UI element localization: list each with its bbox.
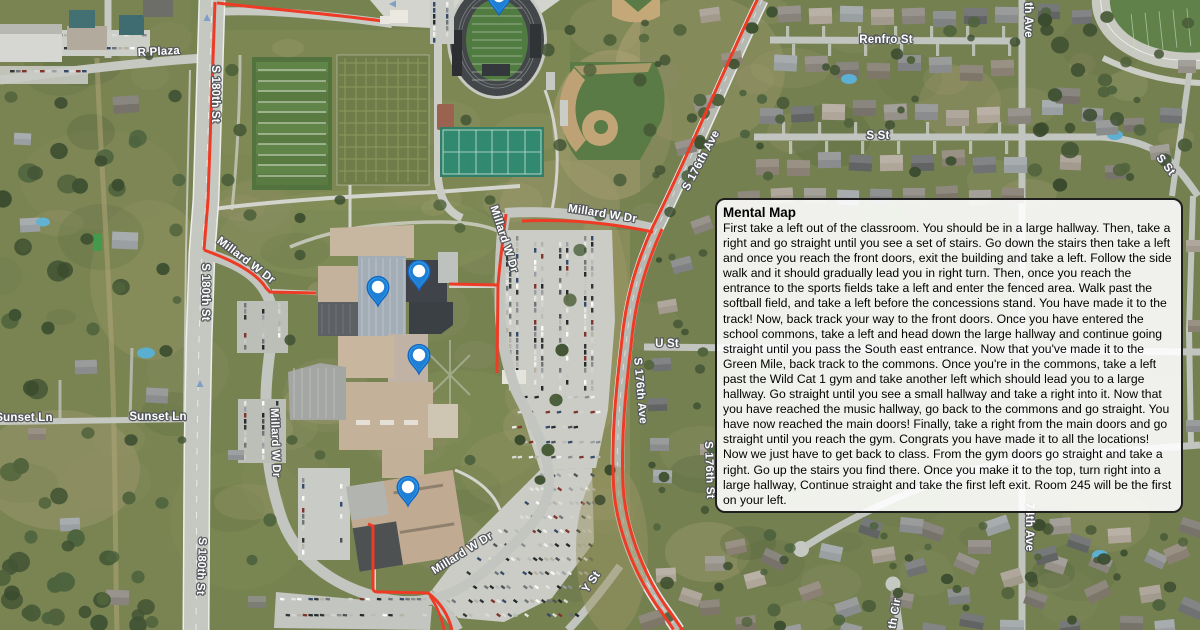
svg-text:Sunset Ln: Sunset Ln [129, 411, 186, 423]
svg-text:R Plaza: R Plaza [137, 45, 180, 59]
svg-text:S St: S St [866, 130, 889, 142]
svg-text:S 180th St: S 180th St [209, 65, 221, 123]
svg-text:S 180th St: S 180th St [199, 263, 211, 321]
svg-text:th Ave: th Ave [1022, 2, 1034, 38]
svg-text:U St: U St [655, 338, 679, 350]
svg-text:S 180th St: S 180th St [194, 537, 208, 595]
svg-text:Renfro St: Renfro St [859, 34, 913, 46]
svg-text:S 176th St: S 176th St [702, 441, 716, 499]
svg-text:Millard W Dr: Millard W Dr [268, 408, 282, 478]
svg-text:Sunset Ln: Sunset Ln [0, 412, 53, 424]
